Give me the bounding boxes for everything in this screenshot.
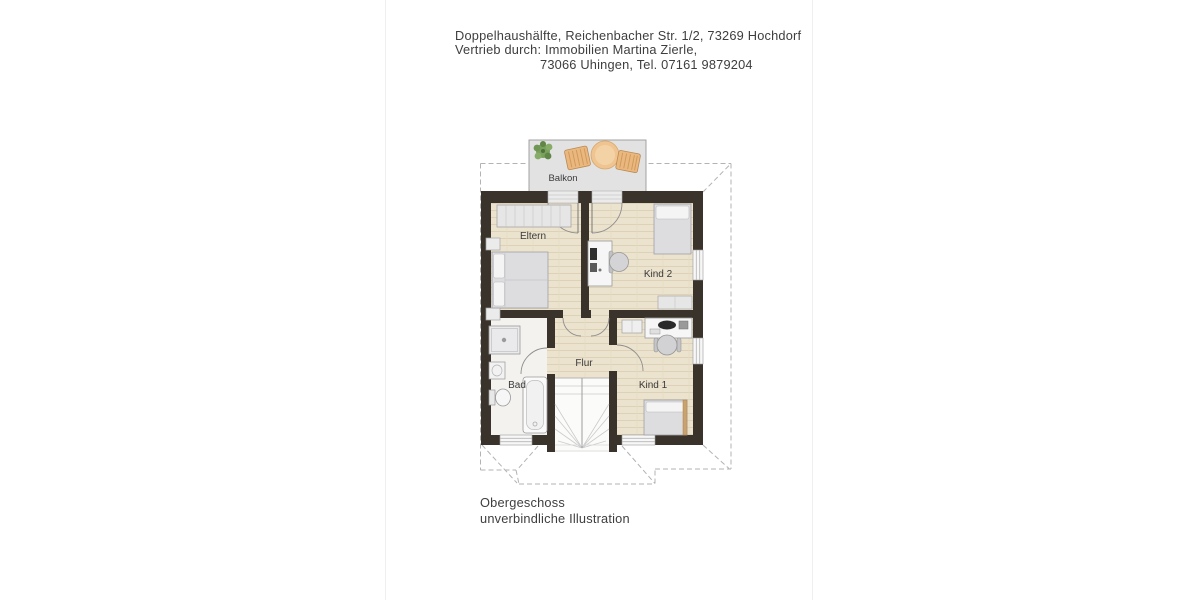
room-label-balkon: Balkon xyxy=(548,173,577,184)
deck-chair-icon xyxy=(615,150,640,173)
room-label-flur: Flur xyxy=(575,358,593,369)
single-bed xyxy=(654,204,691,254)
desk xyxy=(588,241,612,286)
balcony-door-threshold xyxy=(592,191,622,203)
monitor-icon xyxy=(590,248,597,260)
room-label-kind-2: Kind 2 xyxy=(644,269,673,280)
caption-disclaimer: unverbindliche Illustration xyxy=(480,511,630,527)
dresser xyxy=(658,296,692,309)
caption-floor-name: Obergeschoss xyxy=(480,495,630,511)
balcony-door-threshold xyxy=(548,191,578,203)
shelf xyxy=(622,320,642,333)
single-bed xyxy=(644,400,687,435)
window-icon xyxy=(500,435,532,445)
wardrobe xyxy=(497,205,571,227)
window-icon xyxy=(693,250,703,280)
window-icon xyxy=(693,338,703,364)
toilet xyxy=(489,389,511,406)
window-icon xyxy=(622,435,655,445)
balcony-area xyxy=(529,140,646,192)
shower xyxy=(489,326,520,354)
nightstand xyxy=(486,238,500,250)
room-label-eltern: Eltern xyxy=(520,231,546,242)
floorplan-caption: Obergeschoss unverbindliche Illustration xyxy=(480,495,630,526)
double-bed xyxy=(492,252,548,308)
sink xyxy=(489,362,505,379)
room-label-bad: Bad xyxy=(508,380,526,391)
floorplan-document-page: Doppelhaushälfte, Reichenbacher Str. 1/2… xyxy=(0,0,1200,600)
round-table-icon xyxy=(591,141,619,169)
nightstand xyxy=(486,308,500,320)
bathtub xyxy=(523,377,547,433)
room-label-kind-1: Kind 1 xyxy=(639,380,668,391)
deck-chair-icon xyxy=(564,146,591,170)
monitor-icon xyxy=(658,321,676,330)
